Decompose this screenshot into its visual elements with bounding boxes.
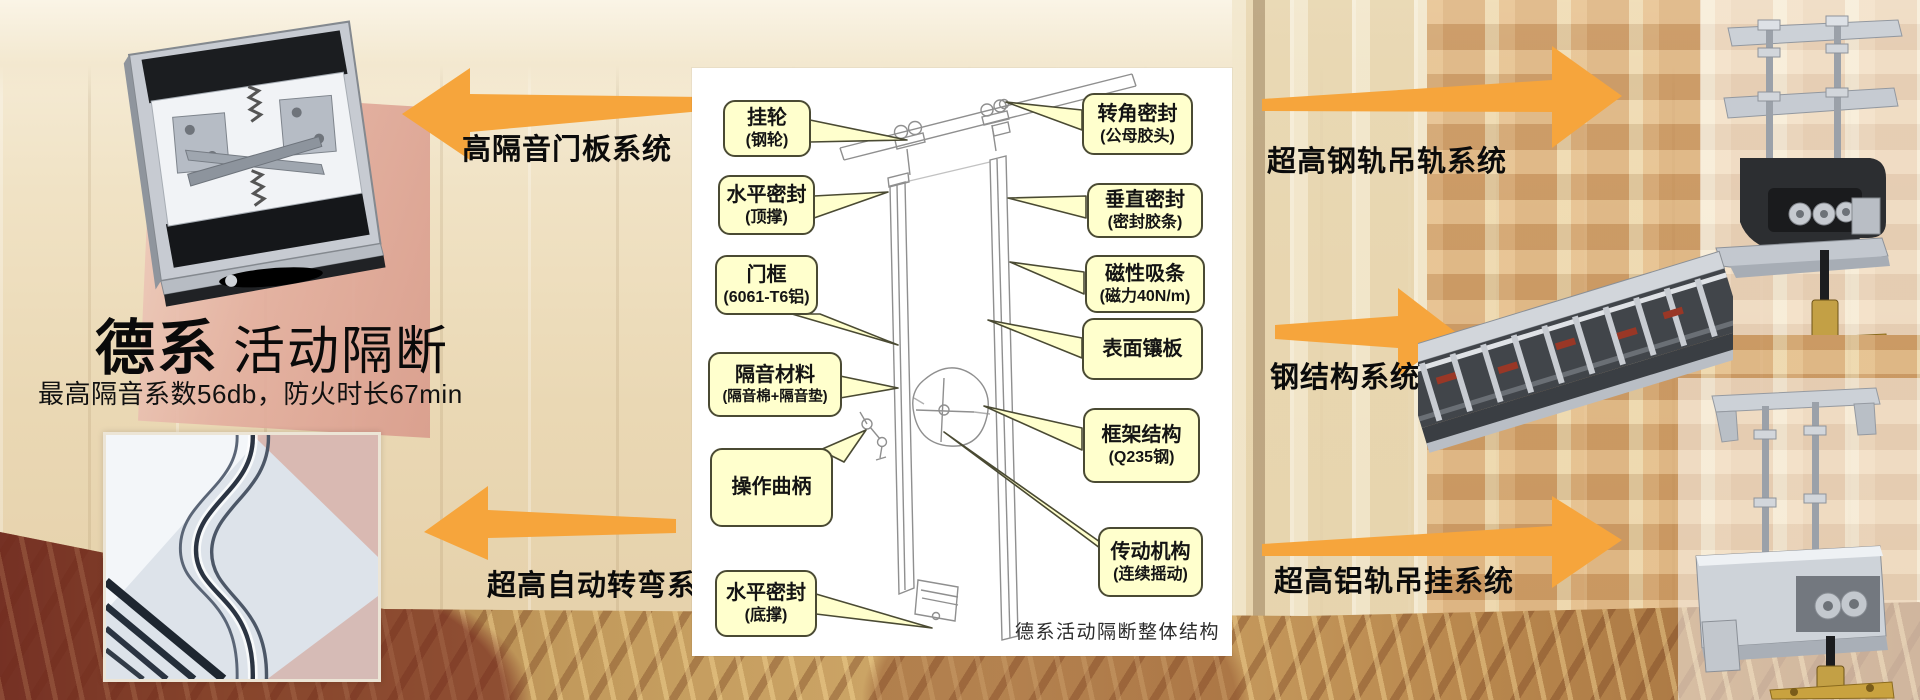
callout-text: 水平密封 — [726, 581, 806, 606]
callout-surface-panel: 表面镶板 — [1082, 318, 1203, 380]
callout-horizontal-seal-top: 水平密封 (顶撑) — [718, 175, 815, 235]
callout-text: 隔音材料 — [735, 363, 815, 388]
callout-operating-crank: 操作曲柄 — [710, 448, 833, 527]
callout-subtext: (顶撑) — [745, 208, 788, 228]
label-steel-rail-system: 超高钢轨吊轨系统 — [1267, 138, 1507, 180]
infographic-stage: 高隔音门板系统 超高钢轨吊轨系统 钢结构系统 超高自动转弯系统 超高铝轨吊挂系统 — [0, 0, 1920, 700]
brand-title-light: 活动隔断 — [233, 309, 449, 384]
aluminum-rail-hanger-photo — [1678, 378, 1920, 700]
callout-text: 操作曲柄 — [732, 475, 812, 500]
callout-hanging-wheel: 挂轮 (钢轮) — [723, 100, 811, 157]
arrow-auto-turn-system — [424, 486, 676, 560]
callout-text: 表面镶板 — [1103, 337, 1183, 362]
callout-sound-insulation: 隔音材料 (隔音棉+隔音垫) — [708, 352, 842, 417]
callout-horizontal-seal-bottom: 水平密封 (底撑) — [715, 570, 817, 637]
callout-text: 垂直密封 — [1105, 188, 1185, 213]
diagram-caption: 德系活动隔断整体结构 — [1015, 617, 1220, 644]
steel-rail-hanger-photo — [1700, 0, 1920, 335]
door-panel-mechanism-photo — [108, 2, 408, 307]
brand-subtitle: 最高隔音系数56db，防火时长67min — [38, 374, 463, 411]
label-door-panel-system: 高隔音门板系统 — [462, 126, 672, 168]
label-steel-structure-system: 钢结构系统 — [1270, 354, 1420, 396]
callout-subtext: (Q235钢) — [1109, 448, 1175, 468]
callout-text: 门框 — [747, 263, 787, 288]
callout-vertical-seal: 垂直密封 (密封胶条) — [1087, 183, 1203, 238]
callout-transmission: 传动机构 (连续摇动) — [1098, 527, 1203, 597]
callout-subtext: (密封胶条) — [1108, 213, 1183, 233]
callout-text: 框架结构 — [1102, 423, 1182, 448]
callout-subtext: (公母胶头) — [1100, 127, 1175, 147]
diagram-panel: 挂轮 (钢轮) 水平密封 (顶撑) 门框 (6061-T6铝) 隔音材料 (隔音… — [692, 68, 1232, 656]
callout-magnetic-strip: 磁性吸条 (磁力40N/m) — [1085, 255, 1205, 313]
callout-corner-seal: 转角密封 (公母胶头) — [1082, 93, 1193, 155]
curved-track-photo — [103, 432, 381, 682]
label-auto-turn-system: 超高自动转弯系统 — [487, 562, 727, 604]
callout-subtext: (6061-T6铝) — [723, 288, 809, 308]
callout-door-frame: 门框 (6061-T6铝) — [715, 255, 818, 315]
callout-text: 转角密封 — [1098, 102, 1178, 127]
callout-subtext: (磁力40N/m) — [1100, 287, 1191, 307]
callout-frame-structure: 框架结构 (Q235钢) — [1083, 408, 1200, 483]
callout-text: 磁性吸条 — [1105, 262, 1185, 287]
callout-subtext: (隔音棉+隔音垫) — [722, 388, 827, 406]
callout-subtext: (连续摇动) — [1113, 565, 1188, 585]
callout-text: 传动机构 — [1111, 540, 1191, 565]
callout-text: 挂轮 — [747, 106, 787, 131]
callout-subtext: (钢轮) — [746, 131, 789, 151]
label-alu-rail-system: 超高铝轨吊挂系统 — [1274, 558, 1514, 600]
callout-subtext: (底撑) — [745, 606, 788, 626]
callout-text: 水平密封 — [727, 183, 807, 208]
arrow-steel-rail-system — [1262, 46, 1622, 148]
